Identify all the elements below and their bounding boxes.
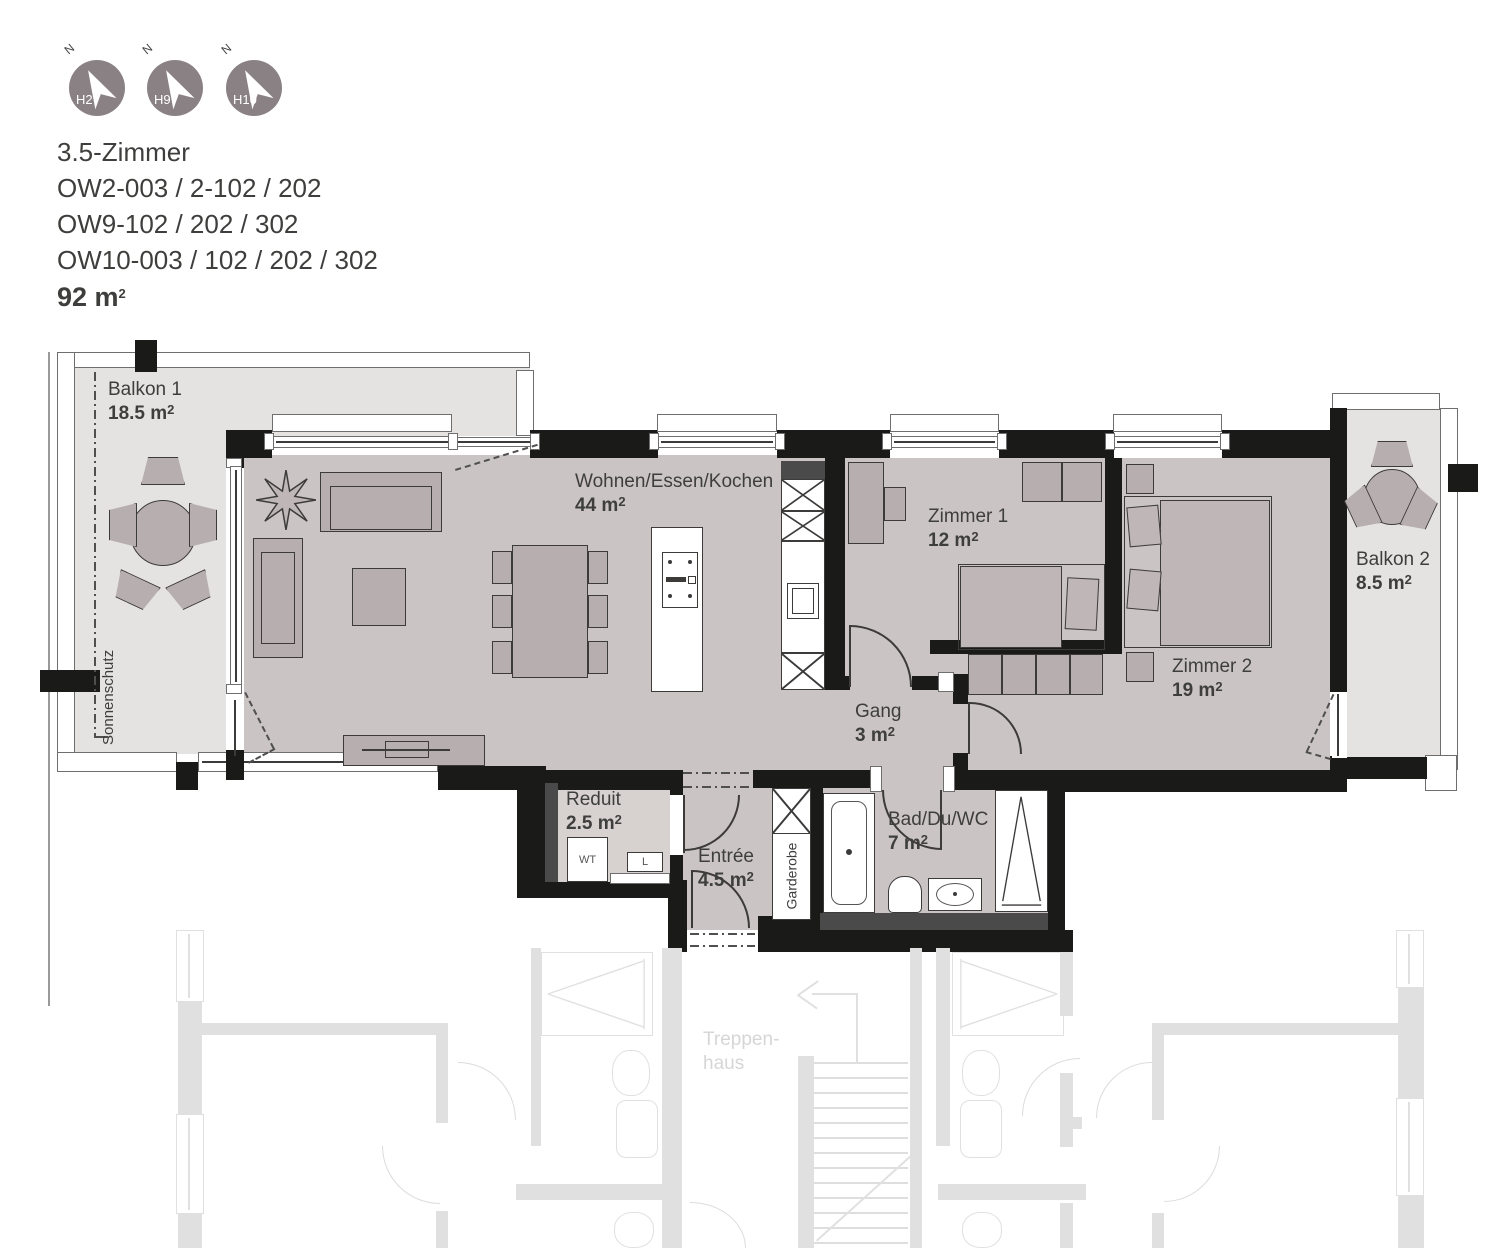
- cooktop-knob: [688, 576, 696, 584]
- window-frame: [890, 414, 999, 432]
- total-area-sup: 2: [119, 286, 126, 301]
- sink-drain: [953, 892, 957, 896]
- wardrobe-divider: [1001, 655, 1003, 694]
- annex-wall-bottom: [517, 882, 683, 898]
- balkon2-bottom-wall: [1335, 757, 1427, 779]
- zimmer2-label: Zimmer 2 19 m2: [1172, 655, 1252, 703]
- entry-step-wall: [668, 880, 687, 952]
- armchair-seat: [261, 552, 295, 644]
- window-jamb: [997, 433, 1007, 450]
- kitchen-appliance-inner: [792, 588, 814, 614]
- room-area-value: 2.5 m: [566, 813, 615, 834]
- stair-arrow-line: [812, 993, 858, 995]
- dining-chair: [492, 595, 512, 628]
- reduit-door-opening: [670, 795, 683, 855]
- threshold-line: [690, 945, 755, 947]
- door-jamb: [938, 672, 954, 692]
- window-jamb: [775, 433, 785, 450]
- faded-wall: [531, 948, 541, 1146]
- cooktop-dot: [668, 560, 672, 564]
- treppenhaus-label: Treppen- haus: [703, 1028, 779, 1076]
- faded-window-line: [1408, 1102, 1410, 1192]
- room-area-value: 4.5 m: [698, 870, 747, 891]
- dining-chair: [588, 641, 608, 674]
- faded-wall: [178, 1214, 202, 1248]
- faded-window: [1396, 1098, 1424, 1196]
- faded-shower: [541, 952, 653, 1036]
- kitchen-cabinet: [781, 653, 825, 690]
- faded-door-arc: [458, 1062, 516, 1120]
- window-frame: [272, 414, 452, 432]
- window-jamb: [226, 684, 242, 694]
- reduit-shelf: [610, 873, 670, 884]
- bad-duct-strip: [820, 913, 1048, 930]
- faded-toilet: [962, 1050, 1000, 1096]
- faded-wall: [200, 1023, 448, 1035]
- compass-label: H2: [76, 92, 93, 107]
- wall-stub: [40, 670, 100, 692]
- faded-stair-wall: [910, 948, 922, 1248]
- window-jamb: [1220, 433, 1230, 450]
- window-glass-line: [276, 441, 448, 443]
- room-name: Reduit: [566, 788, 622, 812]
- room-name: Zimmer 1: [928, 505, 1008, 529]
- dining-chair: [492, 641, 512, 674]
- laundry-box: L: [627, 852, 663, 872]
- room-area-value: 19 m: [1172, 680, 1215, 701]
- sonnenschutz-line: [94, 372, 96, 738]
- desk: [848, 462, 884, 544]
- window-glass-line: [1117, 441, 1218, 443]
- balkon2-railing-top: [1332, 393, 1440, 410]
- treppenhaus-line2: haus: [703, 1052, 779, 1076]
- bed-pillow: [1126, 569, 1161, 612]
- room-area-sup: 2: [1405, 572, 1412, 587]
- faded-wall: [436, 1211, 448, 1248]
- balkon2-railing-corner: [1425, 755, 1457, 791]
- threshold-line: [690, 933, 755, 935]
- garderobe-back-wall: [811, 788, 823, 920]
- window-frame: [1113, 414, 1222, 432]
- total-area-value: 92 m: [57, 282, 119, 312]
- interior-wall: [912, 676, 940, 690]
- faded-window-line: [1408, 934, 1410, 984]
- room-area: 18.5 m2: [108, 402, 182, 426]
- balkon1-railing-bottom: [57, 752, 177, 772]
- door-jamb: [870, 766, 882, 792]
- exterior-wall: [777, 430, 890, 458]
- dining-chair: [492, 551, 512, 584]
- room-area-value: 3 m: [855, 725, 888, 746]
- room-name: Bad/Du/WC: [888, 808, 988, 832]
- faded-door-arc: [382, 1146, 440, 1204]
- bed-duvet: [960, 566, 1062, 648]
- balcony-chair: [189, 503, 217, 547]
- cooktop-bar: [666, 577, 686, 582]
- faded-wall: [436, 1035, 448, 1123]
- room-name: Wohnen/Essen/Kochen: [575, 470, 773, 494]
- nightstand: [1126, 652, 1154, 682]
- kitchen-cabinet: [781, 511, 825, 541]
- garderobe-label: Garderobe: [784, 843, 800, 910]
- faded-wall: [1398, 1196, 1424, 1248]
- faded-door-arc: [1096, 1062, 1152, 1118]
- annex-wall-right: [1048, 788, 1065, 930]
- kitchen-wall: [825, 455, 845, 682]
- interior-wall: [825, 676, 850, 690]
- treppenhaus-line1: Treppen-: [703, 1028, 779, 1052]
- faded-door-arc: [1164, 1146, 1220, 1202]
- room-area: 7 m2: [888, 832, 988, 856]
- faded-window: [1396, 930, 1424, 988]
- faded-stair-wall: [798, 1056, 814, 1248]
- exterior-wall: [1065, 770, 1347, 792]
- room-area-value: 18.5 m: [108, 403, 167, 424]
- window-jamb: [1105, 433, 1115, 450]
- bad-label: Bad/Du/WC 7 m2: [888, 808, 988, 856]
- compass-h2: N H2: [69, 60, 125, 116]
- reduit-label: Reduit 2.5 m2: [566, 788, 622, 836]
- cooktop-dot: [688, 560, 692, 564]
- zimmer1-door-leaf: [849, 625, 851, 687]
- north-label: N: [62, 41, 78, 57]
- door-jamb: [943, 766, 955, 792]
- window-jamb: [264, 433, 274, 450]
- balcony-table: [130, 500, 196, 566]
- exterior-wall: [999, 430, 1114, 458]
- room-area: 4.5 m2: [698, 869, 754, 893]
- unit-ids-2: OW9-102 / 202 / 302: [57, 206, 378, 242]
- faded-door-arc: [690, 1202, 746, 1248]
- nightstand: [1126, 464, 1154, 494]
- faded-wall: [1398, 988, 1424, 1098]
- wardrobe-divider: [1035, 655, 1037, 694]
- unit-ids-3: OW10-003 / 102 / 202 / 302: [57, 242, 378, 278]
- bed-duvet: [1160, 500, 1270, 646]
- faded-wall: [516, 1184, 664, 1200]
- balkon1-label: Balkon 1 18.5 m2: [108, 378, 182, 426]
- room-area: 19 m2: [1172, 679, 1252, 703]
- room-name: Gang: [855, 700, 901, 724]
- window-jamb: [448, 433, 458, 450]
- exterior-wall: [1222, 430, 1347, 458]
- unit-ids-1: OW2-003 / 2-102 / 202: [57, 170, 378, 206]
- balcony-door-leaf: [234, 700, 236, 756]
- faded-wall: [1152, 1035, 1164, 1120]
- room-area-sup: 2: [615, 812, 622, 827]
- faded-wall: [1060, 952, 1073, 1016]
- room-name: Balkon 1: [108, 378, 182, 402]
- compass-label: H9: [154, 92, 171, 107]
- faded-wall: [1060, 1117, 1082, 1129]
- wall-stub: [176, 762, 198, 790]
- exterior-wall: [1330, 458, 1347, 692]
- window-glass-line: [894, 441, 995, 443]
- passage-line: [683, 772, 753, 774]
- interior-wall: [953, 674, 968, 704]
- north-label: N: [140, 41, 156, 57]
- interior-wall: [753, 770, 880, 788]
- coffee-table: [352, 568, 406, 626]
- dining-chair: [588, 595, 608, 628]
- balcony-door-opening: [1332, 692, 1347, 758]
- zimmer1-label: Zimmer 1 12 m2: [928, 505, 1008, 553]
- room-area-value: 12 m: [928, 530, 971, 551]
- room-area-value: 7 m: [888, 833, 921, 854]
- garderobe-top-compartment: [772, 788, 811, 834]
- annex-wall-left: [517, 783, 545, 898]
- room-area-sup: 2: [921, 832, 928, 847]
- wohnen-label: Wohnen/Essen/Kochen 44 m2: [575, 470, 773, 518]
- passage-line: [683, 786, 753, 788]
- reduit-door-leaf: [683, 795, 685, 853]
- toilet: [888, 876, 922, 913]
- window-frame: [657, 414, 777, 432]
- title-block: 3.5-Zimmer OW2-003 / 2-102 / 202 OW9-102…: [57, 134, 378, 316]
- room-name: Entrée: [698, 845, 754, 869]
- faded-wall: [938, 1184, 1086, 1200]
- interior-wall: [945, 770, 1065, 790]
- floorplan-page: N H2 N H9 N H10 3.5-Zimmer OW2-003 / 2-1…: [0, 0, 1500, 1248]
- balcony-chair: [109, 503, 137, 547]
- faded-window-line: [188, 1118, 190, 1210]
- balkon1-pillar: [516, 370, 534, 436]
- compass-label: H10: [233, 92, 257, 107]
- window-jamb: [649, 433, 659, 450]
- room-area: 12 m2: [928, 529, 1008, 553]
- room-area-sup: 2: [1215, 679, 1222, 694]
- faded-shower: [952, 952, 1064, 1036]
- shower: [995, 790, 1048, 912]
- balcony-chair: [1371, 441, 1413, 467]
- zimmer-divider-wall: [1105, 458, 1122, 654]
- exterior-wall: [1330, 408, 1347, 458]
- stair-arrow-line: [856, 993, 858, 1062]
- laundry-box-label: L: [642, 856, 648, 868]
- sideboard-detail-line: [362, 749, 450, 751]
- faded-toilet: [614, 1212, 654, 1248]
- wardrobe-divider: [1061, 463, 1063, 501]
- balkon1-railing-left: [57, 352, 75, 772]
- room-area-sup: 2: [167, 402, 174, 417]
- faded-window: [176, 1114, 204, 1214]
- room-name: Zimmer 2: [1172, 655, 1252, 679]
- faded-sink: [616, 1100, 658, 1158]
- exterior-wall: [1330, 756, 1347, 792]
- faded-wall: [1060, 1203, 1073, 1248]
- sonnenschutz-label: Sonnenschutz: [100, 650, 117, 745]
- total-area: 92 m2: [57, 278, 378, 316]
- faded-wall: [178, 1002, 202, 1114]
- room-area: 44 m2: [575, 494, 773, 518]
- balkon2-label: Balkon 2 8.5 m2: [1356, 548, 1430, 596]
- room-area-sup: 2: [747, 869, 754, 884]
- balkon1-railing-top: [57, 352, 530, 368]
- bed-pillow: [1065, 577, 1100, 631]
- room-area-sup: 2: [888, 724, 895, 739]
- wall-stub: [135, 340, 157, 372]
- faded-wall: [1060, 1073, 1073, 1147]
- room-area-value: 8.5 m: [1356, 573, 1405, 594]
- window-jamb: [882, 433, 892, 450]
- faded-wall: [1152, 1023, 1398, 1035]
- faded-wall: [662, 948, 682, 1248]
- kitchen-cabinet: [781, 479, 825, 511]
- faded-wall: [936, 948, 950, 1146]
- faded-window-line: [188, 934, 190, 998]
- sofa-seat: [330, 486, 432, 530]
- faded-window: [176, 930, 204, 1002]
- balcony-chair: [141, 457, 185, 485]
- reduit-duct-strip: [545, 783, 558, 882]
- room-area-sup: 2: [618, 494, 625, 509]
- faded-toilet: [612, 1050, 650, 1096]
- faded-sink: [960, 1100, 1002, 1158]
- sliding-door-line: [453, 441, 531, 443]
- zimmer2-door-leaf: [968, 702, 970, 754]
- kitchen-duct: [781, 461, 825, 479]
- compass-h10: N H10: [226, 60, 282, 116]
- garderobe-label-cell: Garderobe: [772, 834, 811, 918]
- compass-h9: N H9: [147, 60, 203, 116]
- dining-chair: [588, 551, 608, 584]
- wardrobe-divider: [1069, 655, 1071, 694]
- bed-pillow: [1126, 505, 1161, 548]
- north-label: N: [219, 41, 235, 57]
- washing-tower-label: WT: [579, 854, 596, 866]
- cooktop-dot: [688, 594, 692, 598]
- desk-chair: [884, 487, 906, 521]
- baddoor-floor: [880, 770, 945, 790]
- washing-tower: WT: [567, 837, 608, 882]
- gang-label: Gang 3 m2: [855, 700, 901, 748]
- side-window-glass: [235, 470, 237, 682]
- balcony-door-leaf: [1337, 694, 1339, 756]
- room-area: 8.5 m2: [1356, 572, 1430, 596]
- entry-door-leaf: [691, 870, 693, 928]
- dining-table: [512, 545, 588, 678]
- interior-wall: [953, 753, 968, 772]
- room-area: 3 m2: [855, 724, 901, 748]
- stair-arrow-head: [797, 994, 818, 1009]
- interior-wall: [546, 770, 683, 790]
- room-name: Balkon 2: [1356, 548, 1430, 572]
- wall-stub: [1448, 464, 1478, 492]
- exterior-wall: [530, 430, 658, 458]
- apartment-type: 3.5-Zimmer: [57, 134, 378, 170]
- bathtub-drain: [846, 849, 852, 855]
- window-glass-line: [661, 441, 773, 443]
- room-area: 2.5 m2: [566, 812, 622, 836]
- entree-label: Entrée 4.5 m2: [698, 845, 754, 893]
- cooktop-dot: [668, 594, 672, 598]
- faded-toilet: [962, 1212, 1002, 1248]
- room-area-sup: 2: [971, 529, 978, 544]
- balkon2-railing-right: [1440, 408, 1458, 770]
- plant: [254, 468, 318, 532]
- room-area-value: 44 m: [575, 495, 618, 516]
- stair-treads: [814, 1062, 908, 1248]
- faded-wall: [1152, 1213, 1164, 1248]
